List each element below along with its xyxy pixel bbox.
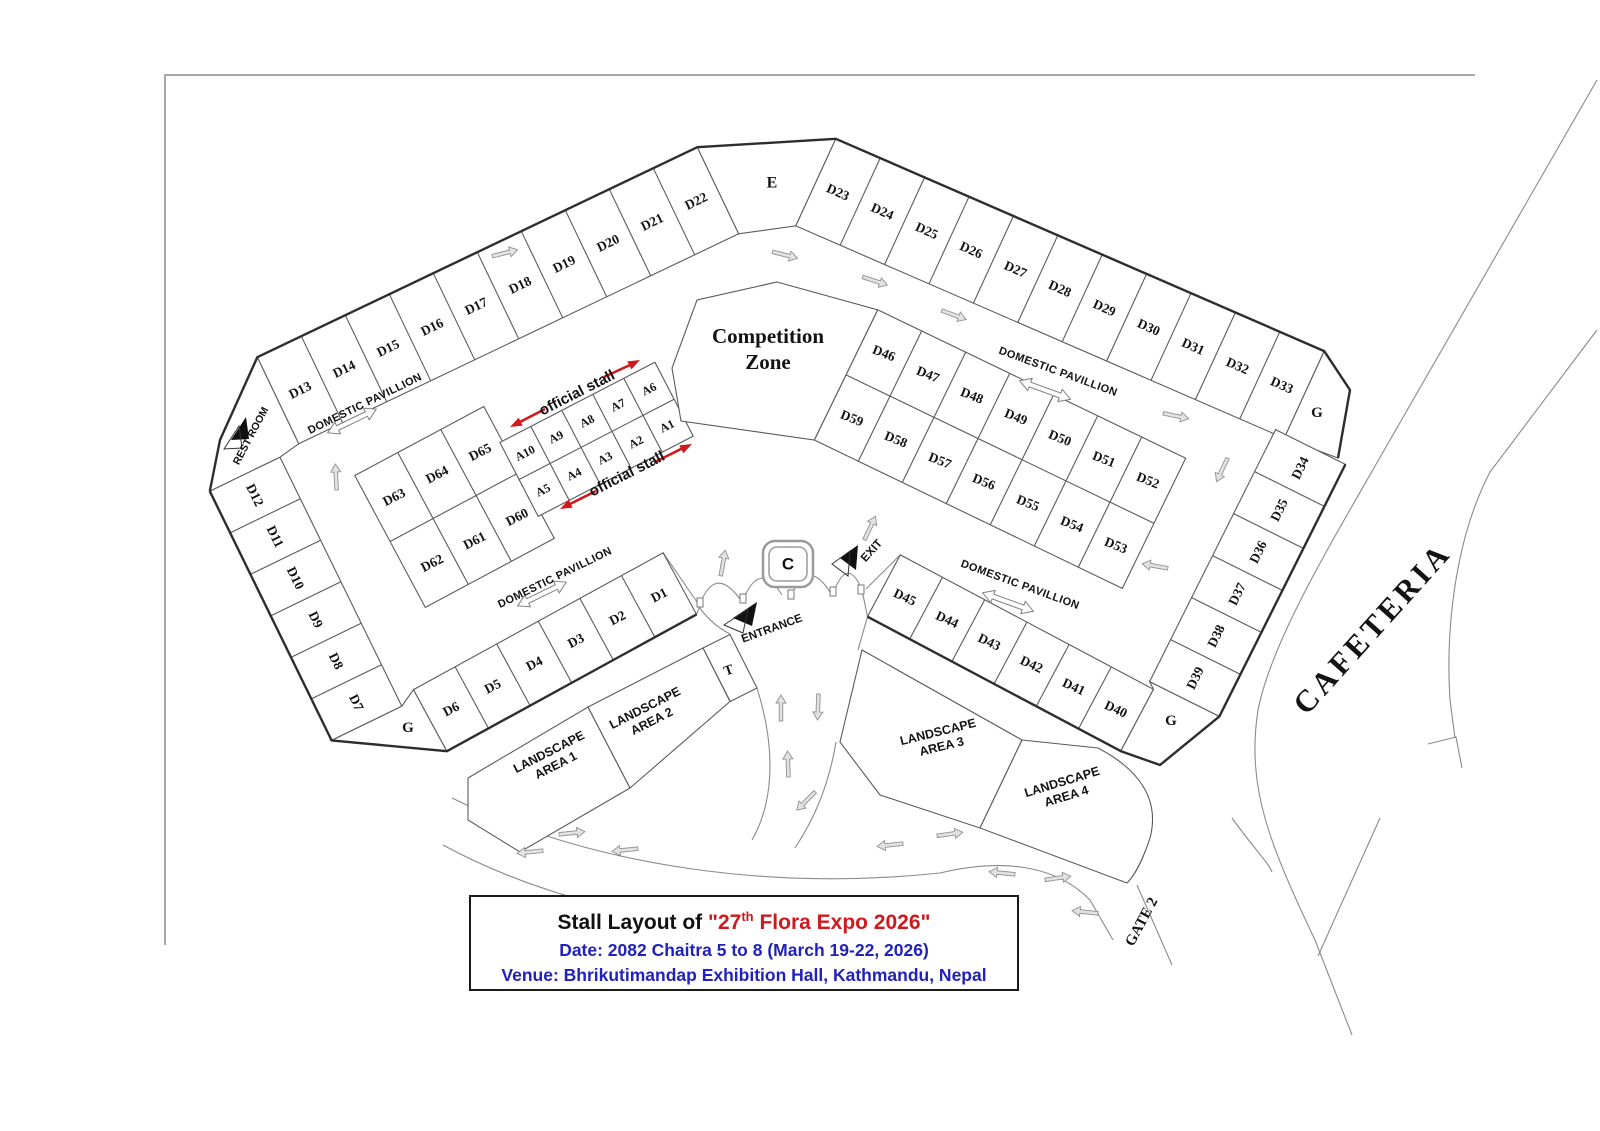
- title-date-line: Date: 2082 Chaitra 5 to 8 (March 19-22, …: [559, 940, 929, 960]
- gate-pillar: [740, 594, 746, 603]
- direction-arrow-icon: [793, 788, 818, 813]
- gate-pillars: [697, 585, 864, 607]
- stall-label-g: G: [1165, 713, 1177, 729]
- red-arrow-head-icon: [679, 444, 692, 453]
- gate-pillar: [830, 587, 836, 596]
- stall-bands: [210, 139, 1350, 765]
- title-box: Stall Layout of "27th Flora Expo 2026" D…: [470, 896, 1018, 990]
- red-arrow-head-icon: [510, 418, 523, 427]
- title-venue-line: Venue: Bhrikutimandap Exhibition Hall, K…: [501, 965, 986, 985]
- direction-arrow-icon: [877, 839, 904, 852]
- title-expo-rest: Flora Expo 2026": [754, 911, 931, 934]
- exit-label: EXIT: [859, 537, 885, 564]
- gate-pillar: [788, 590, 794, 599]
- title-expo-sup: th: [741, 909, 753, 924]
- stall-layout-map: C: [0, 0, 1600, 1131]
- direction-arrow-icon: [776, 695, 786, 721]
- direction-arrow-icon: [936, 827, 963, 841]
- direction-arrow-icon: [559, 827, 586, 840]
- direction-arrow-icon: [813, 694, 824, 720]
- direction-arrow-icon: [716, 549, 730, 576]
- stall-label-e: E: [767, 175, 778, 192]
- stall-label-g: G: [1311, 405, 1323, 421]
- competition-zone-line1: Competition: [712, 324, 824, 348]
- direction-arrow-icon: [1212, 456, 1232, 484]
- direction-arrow-icon: [771, 247, 799, 263]
- c-building-label: C: [782, 555, 794, 574]
- direction-arrow-icon: [940, 306, 968, 324]
- red-arrow-head-icon: [627, 360, 640, 369]
- gate-pillar: [697, 598, 703, 607]
- direction-arrow-icon: [1141, 559, 1168, 573]
- gate2-label: GATE 2: [1123, 895, 1162, 949]
- road-cafeteria-fork: [1232, 818, 1380, 956]
- gate-pillar: [858, 585, 864, 594]
- road-cafeteria-right: [1428, 330, 1597, 768]
- direction-arrow-icon: [860, 514, 880, 542]
- competition-zone-line2: Zone: [745, 350, 791, 374]
- cafeteria-label: CAFETERIA: [1286, 535, 1458, 721]
- direction-arrow-icon: [861, 272, 889, 290]
- map-canvas: C: [0, 0, 1600, 1131]
- title-prefix: Stall Layout of: [558, 911, 709, 934]
- stall-label-g: G: [402, 720, 414, 736]
- direction-arrow-icon: [330, 464, 341, 490]
- title-expo-open: "27: [708, 911, 741, 934]
- direction-arrow-icon: [989, 867, 1016, 880]
- direction-arrow-icon: [1162, 408, 1190, 423]
- direction-arrow-icon: [783, 751, 794, 777]
